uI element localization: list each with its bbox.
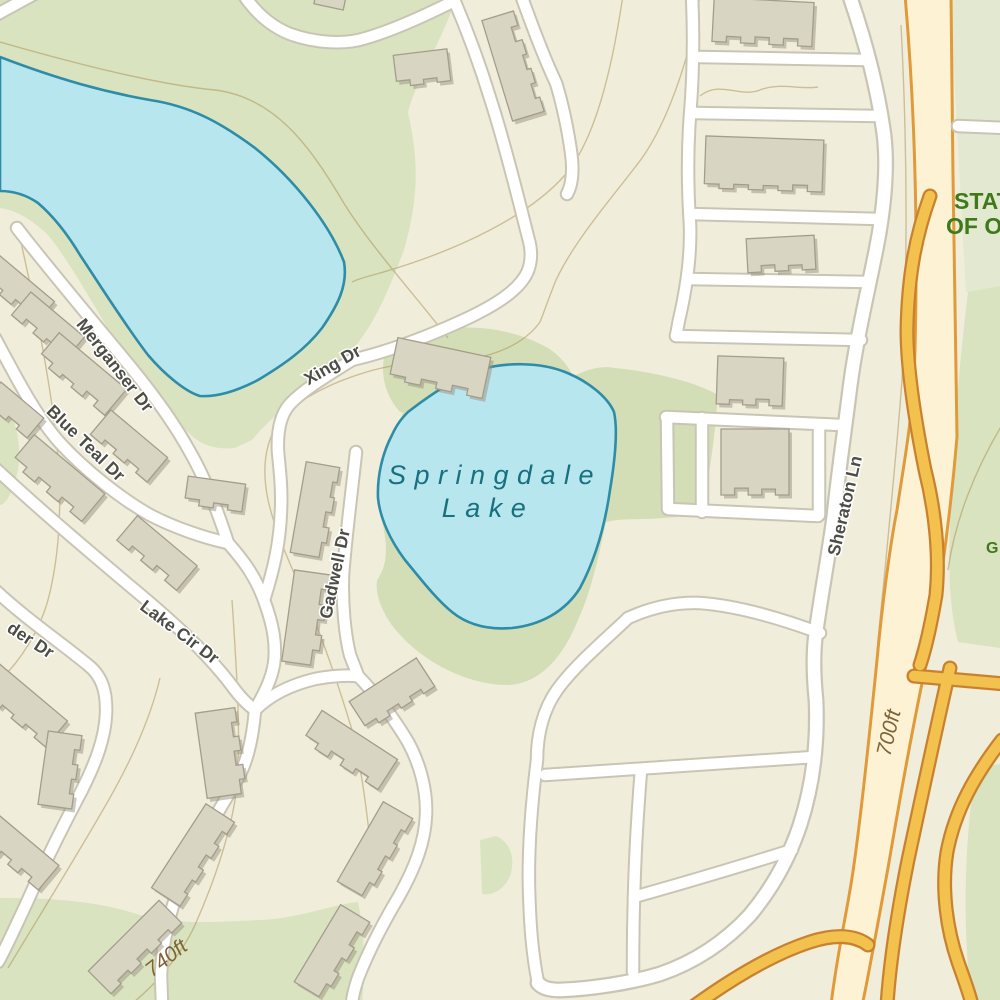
svg-text:Springdale: Springdale xyxy=(388,460,602,490)
svg-text:STATE: STATE xyxy=(954,188,1000,214)
svg-text:OF OHIO: OF OHIO xyxy=(946,213,1000,239)
svg-text:G: G xyxy=(986,540,998,557)
svg-text:Lake: Lake xyxy=(442,493,535,523)
